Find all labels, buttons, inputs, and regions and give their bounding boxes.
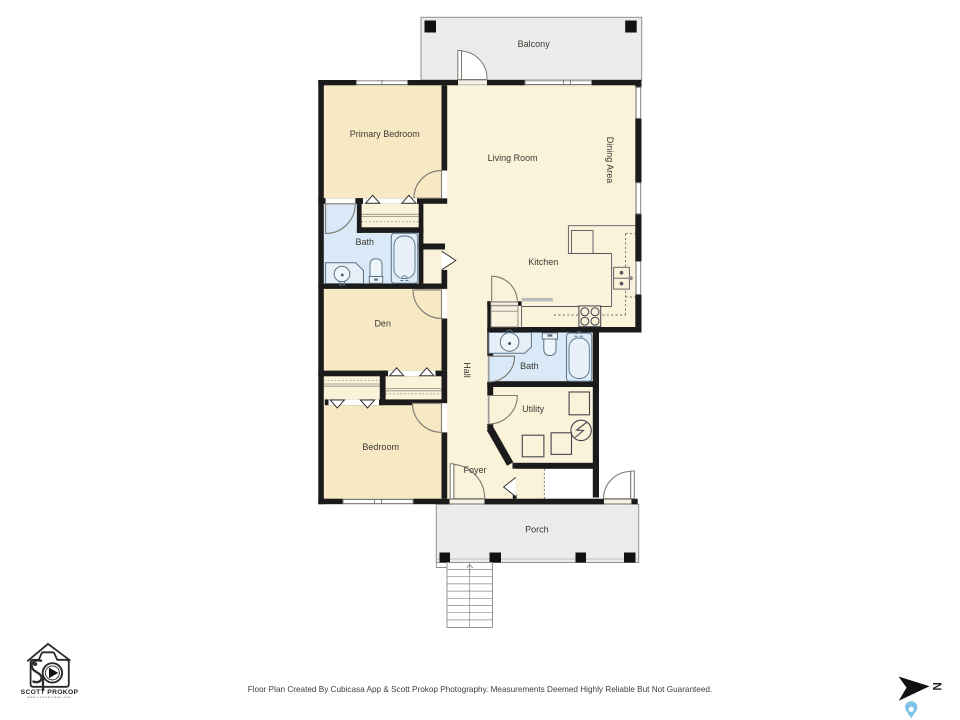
svg-text:Primary Bedroom: Primary Bedroom [350,129,420,139]
svg-text:N: N [930,682,942,690]
svg-text:Bath: Bath [355,237,374,247]
svg-text:Porch: Porch [525,525,549,535]
svg-text:Hall: Hall [462,362,472,378]
svg-text:www.scottprokop.com: www.scottprokop.com [27,695,71,699]
svg-text:Balcony: Balcony [518,39,551,49]
svg-text:Living Room: Living Room [488,153,538,163]
svg-text:Foyer: Foyer [463,465,486,475]
svg-text:Dining Area: Dining Area [605,137,615,184]
svg-text:Utility: Utility [522,404,544,414]
svg-text:Bedroom: Bedroom [362,442,399,452]
svg-text:Floor Plan Created By Cubicasa: Floor Plan Created By Cubicasa App & Sco… [248,685,713,694]
svg-text:Kitchen: Kitchen [528,257,558,267]
svg-text:Den: Den [374,319,391,329]
svg-text:Bath: Bath [520,361,539,371]
